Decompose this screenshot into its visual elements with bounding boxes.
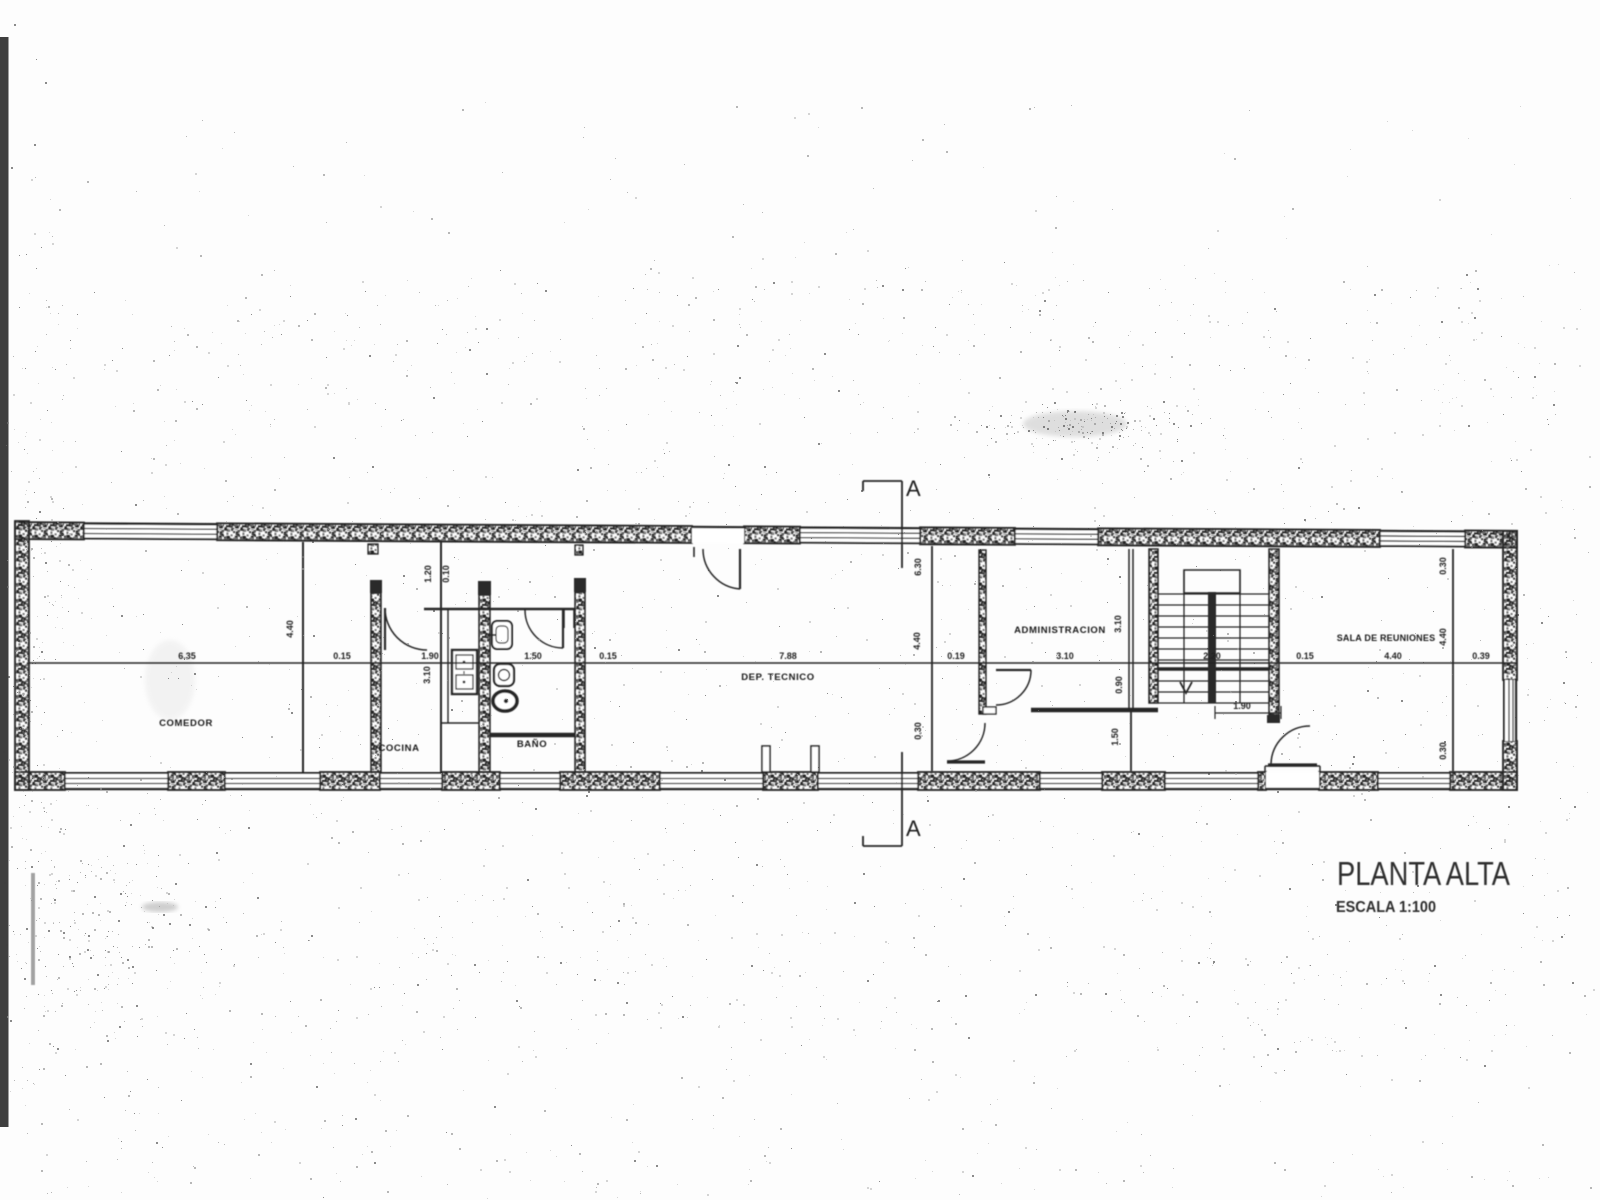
svg-text:3.10: 3.10 bbox=[1113, 615, 1123, 633]
svg-text:COMEDOR: COMEDOR bbox=[159, 718, 213, 729]
svg-text:0.30: 0.30 bbox=[1438, 742, 1448, 760]
svg-text:ESCALA 1:100: ESCALA 1:100 bbox=[1336, 899, 1436, 916]
svg-text:0.15: 0.15 bbox=[333, 651, 351, 661]
svg-text:4.40: 4.40 bbox=[1438, 628, 1448, 646]
svg-text:0.39: 0.39 bbox=[1472, 651, 1490, 661]
svg-text:0.15: 0.15 bbox=[1296, 651, 1314, 661]
svg-text:7.88: 7.88 bbox=[779, 651, 797, 661]
svg-text:ADMINISTRACION: ADMINISTRACION bbox=[1014, 625, 1106, 636]
svg-text:6.30: 6.30 bbox=[913, 558, 923, 576]
svg-text:PLANTA ALTA: PLANTA ALTA bbox=[1337, 855, 1510, 892]
svg-text:4.40: 4.40 bbox=[1384, 651, 1402, 661]
svg-text:3.10: 3.10 bbox=[422, 666, 432, 684]
svg-text:SALA DE REUNIONES: SALA DE REUNIONES bbox=[1337, 633, 1436, 643]
svg-text:4.40: 4.40 bbox=[285, 620, 295, 638]
svg-text:0.90: 0.90 bbox=[1114, 676, 1124, 694]
svg-text:1.50: 1.50 bbox=[1110, 728, 1120, 746]
svg-text:DEP. TECNICO: DEP. TECNICO bbox=[741, 672, 815, 683]
svg-text:0.30: 0.30 bbox=[913, 722, 923, 740]
svg-text:0.10: 0.10 bbox=[441, 565, 451, 583]
svg-text:COCINA: COCINA bbox=[378, 743, 419, 754]
svg-text:0.19: 0.19 bbox=[947, 651, 965, 661]
svg-text:4.40: 4.40 bbox=[912, 632, 922, 650]
svg-text:1.90: 1.90 bbox=[421, 651, 439, 661]
svg-text:3.10: 3.10 bbox=[1056, 651, 1074, 661]
svg-text:2.20: 2.20 bbox=[1203, 651, 1221, 661]
svg-text:A: A bbox=[906, 476, 921, 501]
svg-text:0.30: 0.30 bbox=[1438, 557, 1448, 575]
svg-text:A: A bbox=[906, 816, 921, 841]
svg-text:0.15: 0.15 bbox=[599, 651, 617, 661]
svg-text:BAÑO: BAÑO bbox=[517, 739, 547, 750]
svg-text:1.20: 1.20 bbox=[423, 565, 433, 583]
